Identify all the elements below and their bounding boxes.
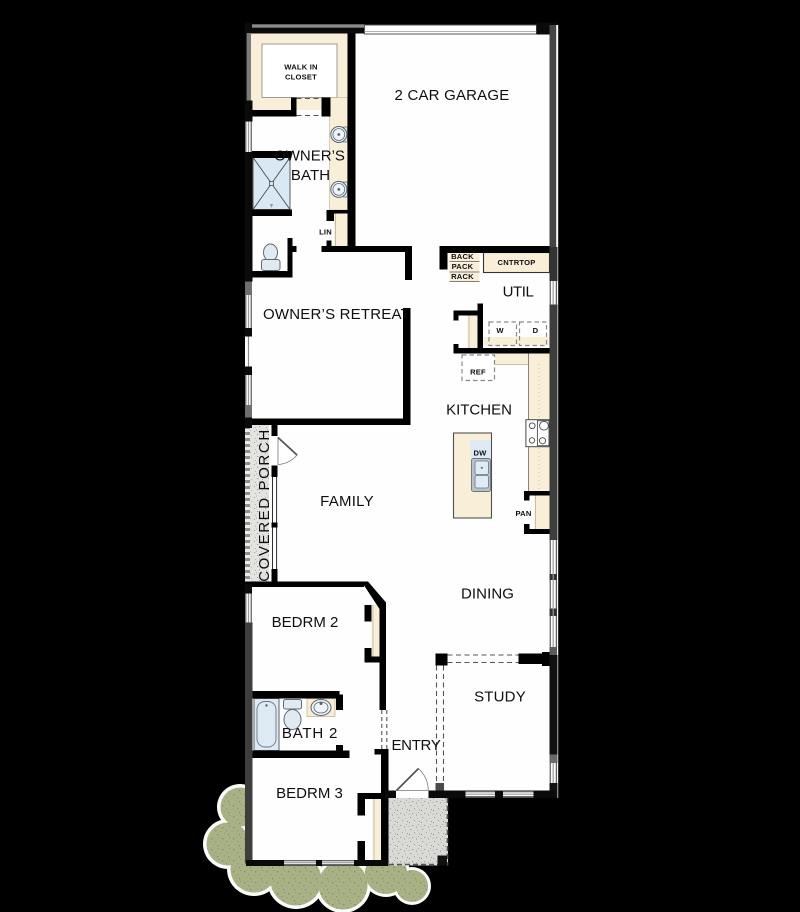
svg-text:OWNER’S: OWNER’S [274,148,345,165]
svg-text:ENTRY: ENTRY [391,737,440,754]
svg-text:REF: REF [470,368,486,377]
svg-text:BATH 2: BATH 2 [282,725,338,742]
svg-text:PAN: PAN [515,509,531,518]
svg-text:OWNER’S RETREAT: OWNER’S RETREAT [263,306,410,323]
svg-text:W: W [496,326,504,335]
svg-text:DINING: DINING [461,586,514,603]
svg-text:KITCHEN: KITCHEN [446,402,512,419]
svg-text:BATH: BATH [291,167,330,184]
svg-text:WALK IN: WALK IN [284,63,317,72]
svg-text:COVERED PORCH: COVERED PORCH [256,428,273,582]
svg-text:RACK: RACK [451,272,474,281]
svg-text:BEDRM 2: BEDRM 2 [272,614,339,631]
svg-text:CNTRTOP: CNTRTOP [498,258,536,267]
svg-text:PACK: PACK [452,262,474,271]
svg-text:CLOSET: CLOSET [285,73,317,82]
svg-text:D: D [533,326,539,335]
svg-text:BACK: BACK [451,252,474,261]
svg-text:LIN: LIN [319,228,332,237]
svg-text:BEDRM 3: BEDRM 3 [276,785,343,802]
svg-text:FAMILY: FAMILY [320,493,374,510]
svg-text:UTIL: UTIL [503,284,534,301]
svg-text:2 CAR GARAGE: 2 CAR GARAGE [395,87,510,104]
svg-text:STUDY: STUDY [474,689,526,706]
svg-text:DW: DW [473,449,487,458]
